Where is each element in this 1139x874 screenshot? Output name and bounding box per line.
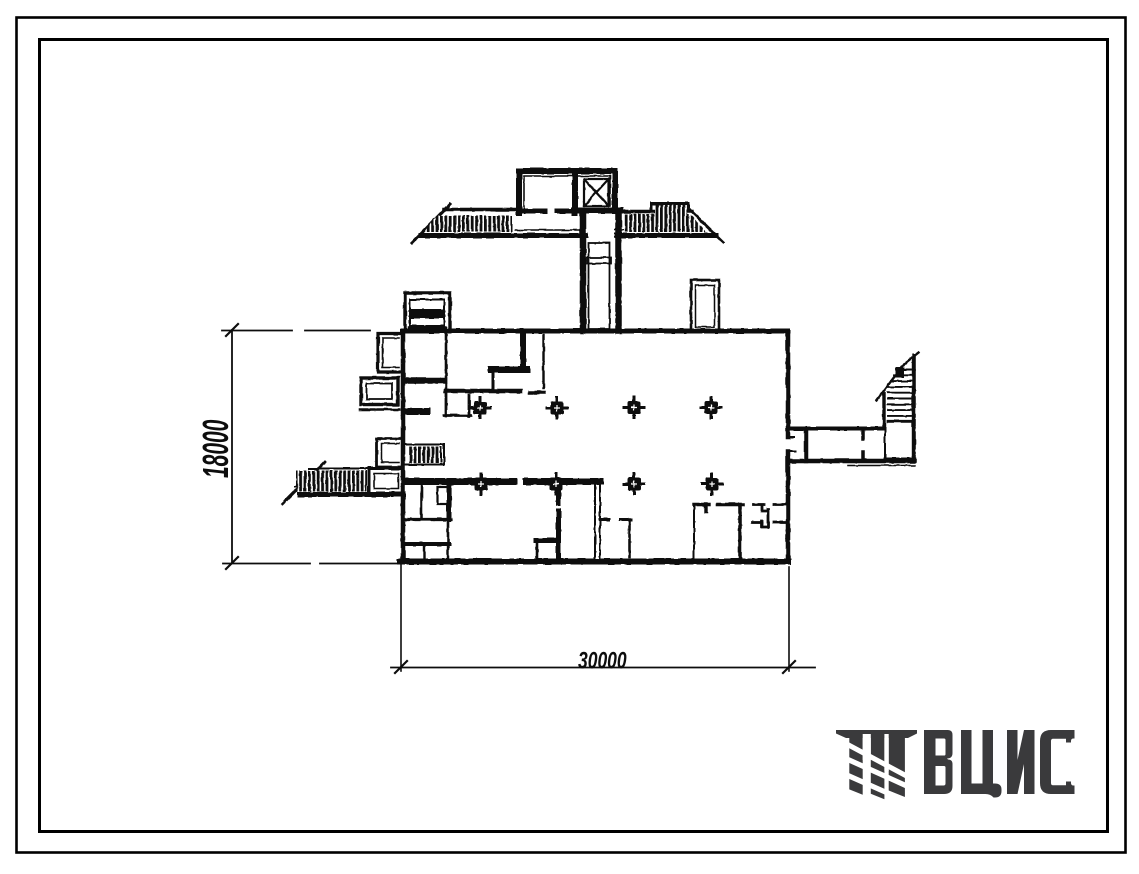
svg-text:18000: 18000 [196, 420, 236, 478]
svg-text:30000: 30000 [578, 648, 627, 674]
